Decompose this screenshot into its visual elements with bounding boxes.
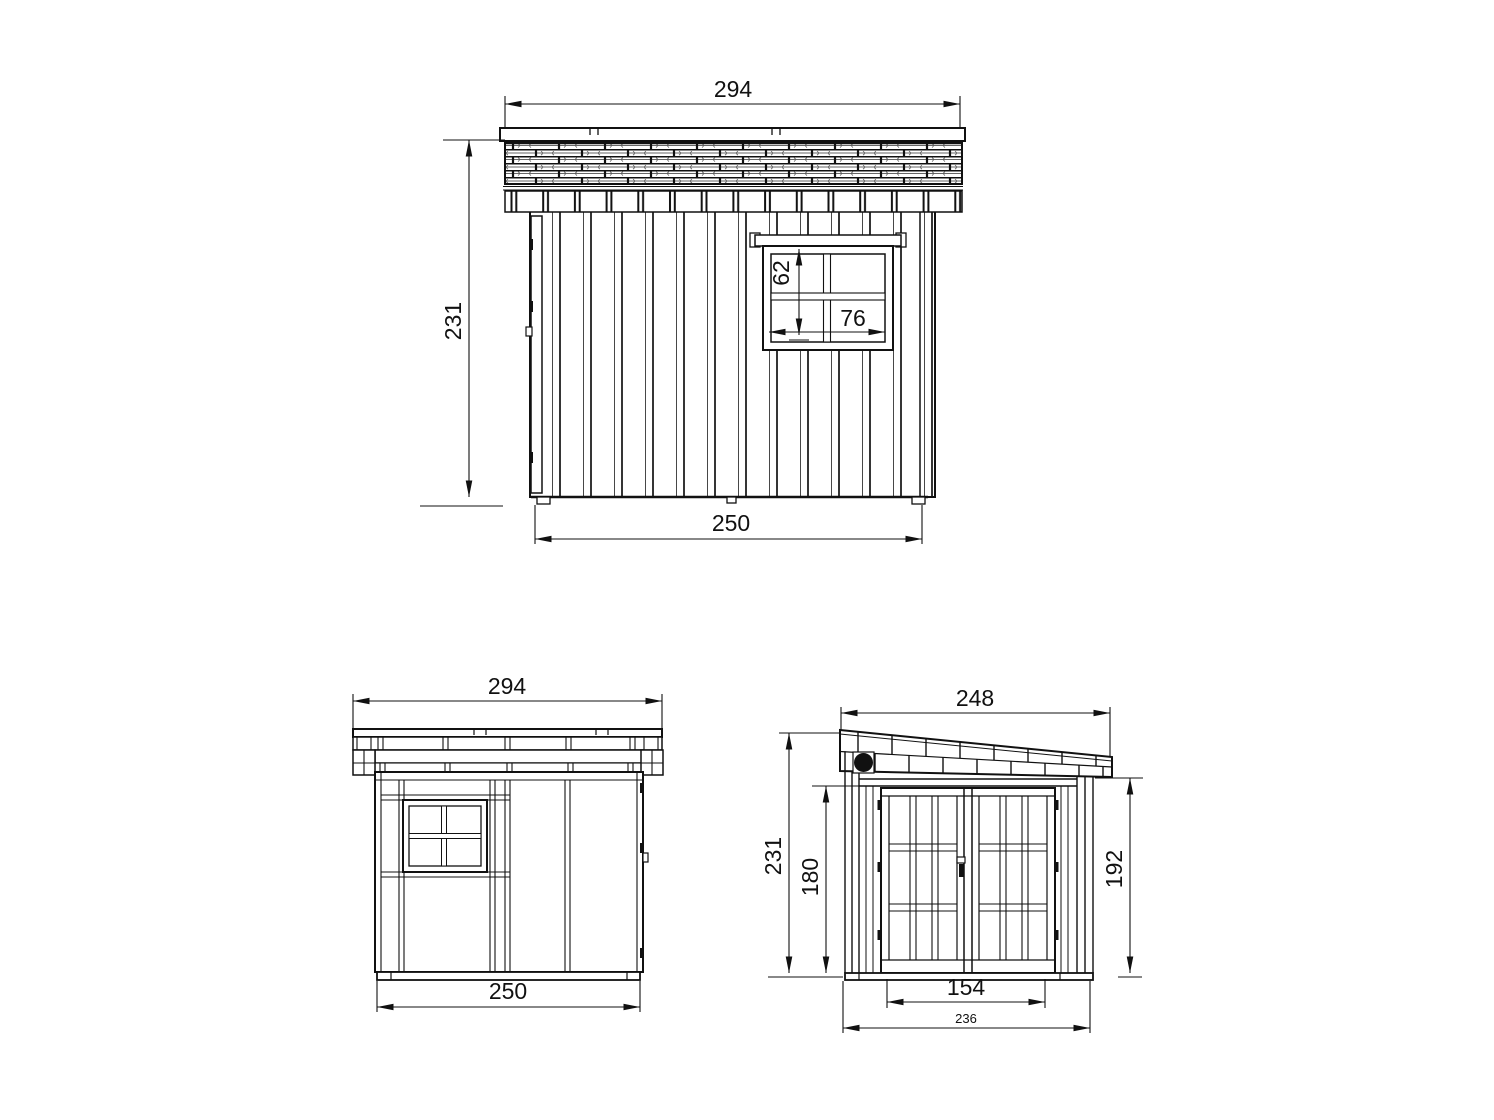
dim-label: 231 [440,302,466,340]
dim-label: 62 [768,260,794,286]
roof-shingle-band [505,141,962,184]
door-frame [881,788,1055,973]
double-door [878,788,1059,973]
hinge-icon [529,301,533,312]
door-lock-icon [959,864,964,877]
corner-trim-left [845,771,859,973]
roof-frame-band [353,737,662,750]
door-latch-icon [643,853,648,862]
dim-label: 294 [488,673,527,699]
hinge-icon [529,239,533,250]
roof [353,729,663,775]
foundation-foot [727,497,736,503]
roof-fascia [375,750,643,763]
window [403,800,487,872]
roof-fascia [500,128,965,141]
hinge-icon [1055,800,1059,810]
dim-label: 248 [956,685,994,711]
roof-top-board [353,729,662,737]
hinge-icon [878,862,882,872]
hinge-icon [1055,862,1059,872]
dim-label: 76 [840,305,866,331]
window-header-board [755,235,901,246]
dim-label: 250 [712,510,750,536]
roof-bracket-left [353,750,375,775]
dim-roof-width: 294 [505,76,960,128]
rafter-band [505,191,962,212]
roof-beam-end-icon [854,753,873,772]
hinge-icon [640,843,644,853]
foundation-foot [912,497,925,504]
corner-trim-right [1077,777,1093,973]
dim-wall-width: 250 [535,505,922,544]
hinge-icon [878,800,882,810]
dim-label: 180 [797,858,823,896]
foundation-foot [537,497,550,504]
pent-roof [840,730,1112,777]
dim-roof-width: 294 [353,673,662,729]
base [531,497,928,504]
shed-technical-drawing: 294 231 62 76 250 [0,0,1494,1120]
hinge-icon [640,948,644,958]
view-side-elevation-b: 294 250 [353,673,663,1012]
dim-label: 294 [714,76,753,102]
hinge-icon [640,783,644,793]
window-rail [409,834,481,839]
hinge-icon [878,930,882,940]
dim-height-left: 231 [760,733,843,977]
door-edge-strip [526,216,542,493]
technical-drawing-sheet: 294 231 62 76 250 [0,0,1494,1120]
hinge-icon [1055,930,1059,940]
dim-label: 192 [1101,850,1127,888]
roof [500,128,965,212]
door-latch-icon [526,327,532,336]
roof-trim-lines [503,187,963,191]
window-rail [771,293,885,300]
dim-wall-width: 250 [377,978,640,1012]
dim-label: 236 [955,1011,977,1026]
hinge-icon [529,452,533,463]
view-front-elevation: 248 231 180 192 154 [760,685,1143,1033]
roof-sub-rail [375,763,643,772]
dim-label: 154 [947,974,986,1000]
view-side-elevation-a: 294 231 62 76 250 [420,76,965,544]
dim-label: 231 [760,837,786,875]
door-edge [531,216,542,493]
dim-height-right: 192 [1095,778,1143,977]
dim-label: 250 [489,978,527,1004]
door-handle-icon [957,857,965,863]
door-header-band [859,779,1077,786]
roof-bracket-right [641,750,663,775]
dim-wall-height: 231 [420,140,505,506]
dim-door-height: 180 [797,786,881,973]
